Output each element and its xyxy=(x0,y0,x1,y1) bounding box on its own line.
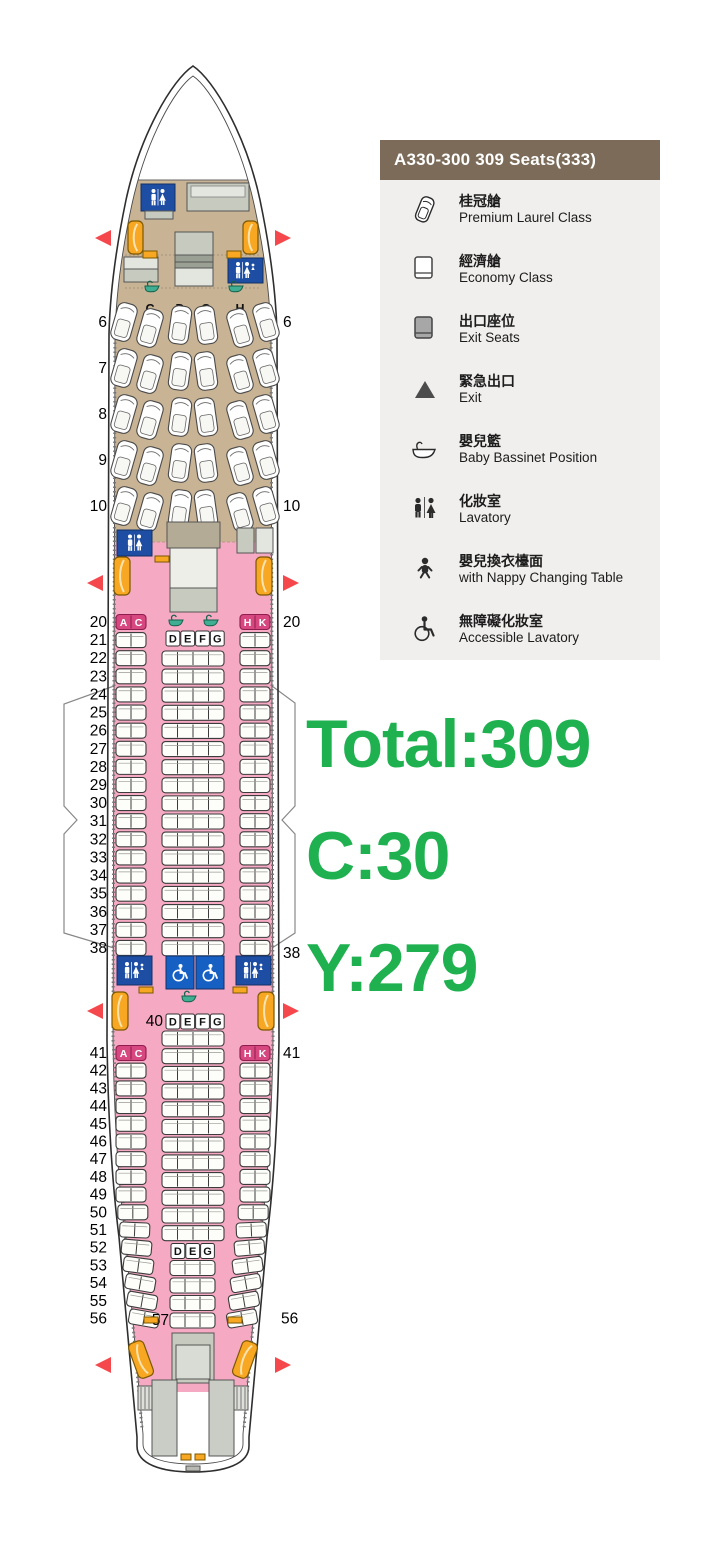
seat-row-49-left xyxy=(116,1187,146,1202)
seat-row-46-left xyxy=(116,1134,146,1149)
economy-seat-icon xyxy=(408,253,442,287)
galley-box xyxy=(181,1454,191,1460)
exit-door xyxy=(243,221,258,254)
galley-box xyxy=(209,1380,234,1456)
seat-row-28-right xyxy=(240,759,270,774)
galley-box xyxy=(175,262,213,268)
label: 20 xyxy=(283,614,301,631)
seat-row-center xyxy=(170,1313,215,1328)
seat-row-27-left xyxy=(116,741,146,756)
seat-row-center xyxy=(162,1155,224,1170)
seat-row-38-right xyxy=(240,940,270,955)
legend-item-en: Economy Class xyxy=(459,270,553,287)
lavatory xyxy=(141,184,175,211)
seat-row-center xyxy=(162,1173,224,1188)
galley-box xyxy=(256,528,273,553)
label: 28 xyxy=(90,759,107,776)
bassinet-icon xyxy=(408,433,442,467)
seat-row-center xyxy=(162,905,224,920)
legend-items: 桂冠艙Premium Laurel Class經濟艙Economy Class出… xyxy=(380,180,660,660)
seat-row-53-left xyxy=(123,1256,155,1275)
label: 6 xyxy=(98,314,107,331)
seat-row-29-left xyxy=(116,777,146,792)
seat-row-47-right xyxy=(240,1152,270,1167)
seat-row-48-left xyxy=(116,1169,146,1184)
seat-row-center xyxy=(162,742,224,757)
legend-item-exit-triangle: 緊急出口Exit xyxy=(380,360,660,420)
legend-item-text: 嬰兒籃Baby Bassinet Position xyxy=(459,433,597,467)
label: 55 xyxy=(90,1293,107,1310)
galley-box xyxy=(195,1454,205,1460)
seat-row-center xyxy=(162,1031,224,1046)
seat-row-52-left xyxy=(121,1239,152,1257)
seat-row-37-left xyxy=(116,922,146,937)
legend-item-bassinet: 嬰兒籃Baby Bassinet Position xyxy=(380,420,660,480)
label: D xyxy=(174,1246,182,1258)
lavatory-icon xyxy=(408,493,442,527)
galley-box xyxy=(144,1317,158,1323)
seat-row-25-left xyxy=(116,705,146,720)
total-seats-text: Total:309 xyxy=(306,688,590,800)
label: 41 xyxy=(90,1045,107,1062)
emergency-exit-triangle xyxy=(87,1003,103,1019)
galley-box xyxy=(237,528,254,553)
label: H xyxy=(244,1048,252,1060)
seat-row-center xyxy=(162,705,224,720)
exit-seat-icon xyxy=(408,313,442,347)
economy-seat-icon xyxy=(408,253,442,287)
galley-box xyxy=(170,548,217,588)
seat-row-43-left xyxy=(116,1081,146,1096)
label: D xyxy=(169,634,177,646)
legend-item-en: Exit xyxy=(459,390,515,407)
exit-door xyxy=(256,557,272,595)
emergency-exit-triangle xyxy=(87,575,103,591)
emergency-exit-triangle xyxy=(275,1357,291,1373)
seat-row-33-left xyxy=(116,850,146,865)
seatmap-page: ACDGHK667891010ACHK202021222324252627282… xyxy=(0,0,720,1550)
galley-box xyxy=(176,1345,210,1379)
seat-row-36-right xyxy=(240,904,270,919)
seat-row-center xyxy=(162,886,224,901)
label: 43 xyxy=(90,1080,107,1097)
seat-row-center xyxy=(162,941,224,956)
legend-item-nappy: 嬰兒換衣檯面with Nappy Changing Table xyxy=(380,540,660,600)
nappy-icon xyxy=(408,553,442,587)
premium-seat-icon xyxy=(408,193,442,227)
seat-row-24-right xyxy=(240,687,270,702)
label: F xyxy=(199,1017,206,1029)
seat-row-46-right xyxy=(240,1134,270,1149)
seat-row-center xyxy=(162,1084,224,1099)
label: E xyxy=(189,1246,196,1258)
seat-row-center xyxy=(162,868,224,883)
label: 42 xyxy=(90,1063,107,1080)
seat-row-20-left: AC xyxy=(116,615,146,630)
premium-seat-icon xyxy=(408,193,442,227)
exit-door xyxy=(114,557,130,595)
lavatory xyxy=(117,530,152,556)
seat-row-26-left xyxy=(116,723,146,738)
galley-box xyxy=(227,251,241,258)
legend-item-zh: 化妝室 xyxy=(459,493,511,511)
label: 31 xyxy=(90,813,107,830)
label: 20 xyxy=(90,614,108,631)
seat-row-center xyxy=(162,669,224,684)
seat-row-center xyxy=(162,814,224,829)
galley-box xyxy=(143,251,157,258)
label: C xyxy=(135,617,143,629)
legend-item-zh: 無障礙化妝室 xyxy=(459,613,579,631)
seat-row-51-left xyxy=(119,1222,150,1238)
seat-row-22-right xyxy=(240,651,270,666)
legend-item-zh: 桂冠艙 xyxy=(459,193,592,211)
legend-item-en: Accessible Lavatory xyxy=(459,630,579,647)
label: A xyxy=(120,1048,128,1060)
legend-item-en: Lavatory xyxy=(459,510,511,527)
galley-box xyxy=(175,255,213,262)
galley-box xyxy=(186,1466,200,1471)
label: 52 xyxy=(90,1240,107,1257)
accessible-lavatory xyxy=(196,956,224,989)
legend-item-zh: 經濟艙 xyxy=(459,253,553,271)
seat-row-21-left xyxy=(116,633,146,648)
legend-item-en: Premium Laurel Class xyxy=(459,210,592,227)
label: A xyxy=(120,617,128,629)
exit-seat-icon xyxy=(408,313,442,347)
accessible-icon xyxy=(408,613,442,647)
seat-row-33-right xyxy=(240,850,270,865)
economy-seats-text: Y:279 xyxy=(306,912,590,1024)
seat-row-center xyxy=(162,651,224,666)
seat-row-center xyxy=(162,1208,224,1223)
legend-item-text: 桂冠艙Premium Laurel Class xyxy=(459,193,592,227)
label: E xyxy=(184,634,191,646)
seat-row-49-right xyxy=(240,1187,270,1202)
seat-row-center xyxy=(170,1296,215,1311)
label: 37 xyxy=(90,922,107,939)
seat-row-center xyxy=(162,1190,224,1205)
galley-box xyxy=(145,211,173,219)
seat-row-center xyxy=(162,1137,224,1152)
label: 53 xyxy=(90,1257,107,1274)
seat-row-center xyxy=(162,1102,224,1117)
seat-row-35-right xyxy=(240,886,270,901)
bassinet-icon xyxy=(408,433,442,467)
label: 40 xyxy=(146,1013,164,1030)
seat-row-44-right xyxy=(240,1099,270,1114)
seat-row-center xyxy=(162,850,224,865)
seat-row-51-right xyxy=(236,1222,267,1238)
label: K xyxy=(259,1048,267,1060)
label: 30 xyxy=(90,795,108,812)
label: 21 xyxy=(90,632,107,649)
label: 27 xyxy=(90,741,107,758)
label: 34 xyxy=(90,868,108,885)
label: 45 xyxy=(90,1116,107,1133)
emergency-exit-triangle xyxy=(283,1003,299,1019)
seat-row-32-left xyxy=(116,832,146,847)
seat-row-42-right xyxy=(240,1063,270,1078)
seat-row-29-right xyxy=(240,777,270,792)
label: 51 xyxy=(90,1222,107,1239)
label: 54 xyxy=(90,1275,108,1292)
seat-row-35-left xyxy=(116,886,146,901)
seat-row-center xyxy=(162,1066,224,1081)
galley-box xyxy=(170,588,217,612)
seat-row-25-right xyxy=(240,705,270,720)
seat-row-45-right xyxy=(240,1116,270,1131)
emergency-exit-triangle xyxy=(95,230,111,246)
label: G xyxy=(213,1017,222,1029)
seat-row-22-left xyxy=(116,651,146,666)
label: 25 xyxy=(90,705,107,722)
label: 8 xyxy=(98,406,107,423)
galley-box xyxy=(152,1380,177,1456)
label: 23 xyxy=(90,668,107,685)
label: 41 xyxy=(283,1045,300,1062)
legend-item-zh: 嬰兒籃 xyxy=(459,433,597,451)
seat-row-52-right xyxy=(234,1239,265,1257)
legend-item-accessible: 無障礙化妝室Accessible Lavatory xyxy=(380,600,660,660)
label: 26 xyxy=(90,723,107,740)
exit-triangle-icon xyxy=(408,373,442,407)
galley-box xyxy=(167,522,220,548)
seat-row-center xyxy=(162,1049,224,1064)
legend-item-text: 化妝室Lavatory xyxy=(459,493,511,527)
galley-box xyxy=(155,556,169,562)
seat-row-center xyxy=(162,723,224,738)
seat-row-36-left xyxy=(116,904,146,919)
label: 36 xyxy=(90,904,107,921)
seat-row-50-right xyxy=(238,1205,268,1220)
legend-item-text: 出口座位Exit Seats xyxy=(459,313,520,347)
legend-item-text: 嬰兒換衣檯面with Nappy Changing Table xyxy=(459,553,623,587)
legend-item-en: with Nappy Changing Table xyxy=(459,570,623,587)
legend-item-exit-seat: 出口座位Exit Seats xyxy=(380,300,660,360)
right-wing-outline xyxy=(272,686,295,948)
lavatory xyxy=(236,956,271,985)
label: 47 xyxy=(90,1151,107,1168)
seat-row-44-left xyxy=(116,1099,146,1114)
seat-row-41-left: AC xyxy=(116,1046,146,1061)
label: 33 xyxy=(90,849,107,866)
seat-row-48-right xyxy=(240,1169,270,1184)
seat-row-42-left xyxy=(116,1063,146,1078)
seat-row-37-right xyxy=(240,922,270,937)
seat-row-center xyxy=(162,760,224,775)
accessible-icon xyxy=(408,613,442,647)
seat-row-31-right xyxy=(240,814,270,829)
galley-box xyxy=(228,1317,242,1323)
lavatory xyxy=(117,956,152,985)
exit-door xyxy=(128,221,143,254)
legend-item-zh: 出口座位 xyxy=(459,313,520,331)
exit-door xyxy=(258,992,274,1030)
legend-item-zh: 緊急出口 xyxy=(459,373,515,391)
exit-triangle-icon xyxy=(408,373,442,407)
label: 48 xyxy=(90,1169,107,1186)
lavatory-icon xyxy=(408,493,442,527)
legend-item-text: 緊急出口Exit xyxy=(459,373,515,407)
legend-item-en: Exit Seats xyxy=(459,330,520,347)
seatmap-root: ACDGHK667891010ACHK202021222324252627282… xyxy=(64,66,301,1472)
seat-row-32-right xyxy=(240,832,270,847)
label: 7 xyxy=(98,360,107,377)
legend-panel: A330-300 309 Seats(333) 桂冠艙Premium Laure… xyxy=(380,140,660,660)
seat-row-center xyxy=(162,923,224,938)
label: 50 xyxy=(90,1204,108,1221)
seat-row-41-right: HK xyxy=(240,1046,270,1061)
seat-row-center xyxy=(162,1226,224,1241)
label: D xyxy=(169,1017,177,1029)
seat-row-20-right: HK xyxy=(240,615,270,630)
legend-header: A330-300 309 Seats(333) xyxy=(380,140,660,180)
legend-item-en: Baby Bassinet Position xyxy=(459,450,597,467)
label: 38 xyxy=(90,940,107,957)
legend-item-text: 經濟艙Economy Class xyxy=(459,253,553,287)
seat-row-center xyxy=(162,778,224,793)
seat-row-center xyxy=(162,1120,224,1135)
galley-box xyxy=(175,232,213,255)
label: 24 xyxy=(90,686,108,703)
label: 10 xyxy=(90,498,108,515)
label: 44 xyxy=(90,1098,108,1115)
galley-box xyxy=(124,257,158,269)
seat-row-21-right xyxy=(240,633,270,648)
galley-box xyxy=(139,987,153,993)
label: 32 xyxy=(90,831,107,848)
legend-item-economy-seat: 經濟艙Economy Class xyxy=(380,240,660,300)
emergency-exit-triangle xyxy=(275,230,291,246)
seat-row-30-right xyxy=(240,796,270,811)
label: 49 xyxy=(90,1187,107,1204)
label: 22 xyxy=(90,650,107,667)
emergency-exit-triangle xyxy=(95,1357,111,1373)
seat-row-34-left xyxy=(116,868,146,883)
label: 35 xyxy=(90,886,107,903)
lavatory xyxy=(228,258,263,283)
seat-row-center xyxy=(170,1278,215,1293)
legend-item-lavatory: 化妝室Lavatory xyxy=(380,480,660,540)
label: G xyxy=(213,634,222,646)
accessible-lavatory xyxy=(166,956,194,989)
seat-row-23-right xyxy=(240,669,270,684)
seat-row-50-left xyxy=(118,1205,148,1220)
label: H xyxy=(244,617,252,629)
seat-row-30-left xyxy=(116,796,146,811)
seat-row-45-left xyxy=(116,1116,146,1131)
seat-row-31-left xyxy=(116,814,146,829)
seat-row-27-right xyxy=(240,741,270,756)
seat-row-38-left xyxy=(116,940,146,955)
label: 6 xyxy=(283,314,292,331)
label: 38 xyxy=(283,945,300,962)
seat-row-47-left xyxy=(116,1152,146,1167)
legend-item-zh: 嬰兒換衣檯面 xyxy=(459,553,623,571)
business-seats-text: C:30 xyxy=(306,800,590,912)
label: 56 xyxy=(90,1311,107,1328)
seat-row-center xyxy=(162,687,224,702)
seat-row-center xyxy=(170,1261,215,1276)
label: 56 xyxy=(281,1311,298,1328)
label: 9 xyxy=(98,452,107,469)
seat-row-24-left xyxy=(116,687,146,702)
seat-row-26-right xyxy=(240,723,270,738)
label: F xyxy=(199,634,206,646)
label: 46 xyxy=(90,1134,107,1151)
nappy-icon xyxy=(408,553,442,587)
galley-box xyxy=(233,987,247,993)
seat-row-43-right xyxy=(240,1081,270,1096)
label: 29 xyxy=(90,777,107,794)
galley-box xyxy=(191,186,245,197)
emergency-exit-triangle xyxy=(283,575,299,591)
seat-count-summary: Total:309 C:30 Y:279 xyxy=(306,688,590,1024)
legend-item-text: 無障礙化妝室Accessible Lavatory xyxy=(459,613,579,647)
seat-row-23-left xyxy=(116,669,146,684)
label: 10 xyxy=(283,498,301,515)
seat-row-center xyxy=(162,832,224,847)
seat-row-center xyxy=(162,796,224,811)
label: E xyxy=(184,1017,191,1029)
seat-row-34-right xyxy=(240,868,270,883)
label: K xyxy=(259,617,267,629)
label: C xyxy=(135,1048,143,1060)
legend-item-premium-seat: 桂冠艙Premium Laurel Class xyxy=(380,180,660,240)
seat-row-28-left xyxy=(116,759,146,774)
galley-box xyxy=(124,269,158,282)
exit-door xyxy=(112,992,128,1030)
seat-row-53-right xyxy=(232,1256,264,1275)
label: G xyxy=(203,1246,212,1258)
galley-box xyxy=(175,268,213,286)
